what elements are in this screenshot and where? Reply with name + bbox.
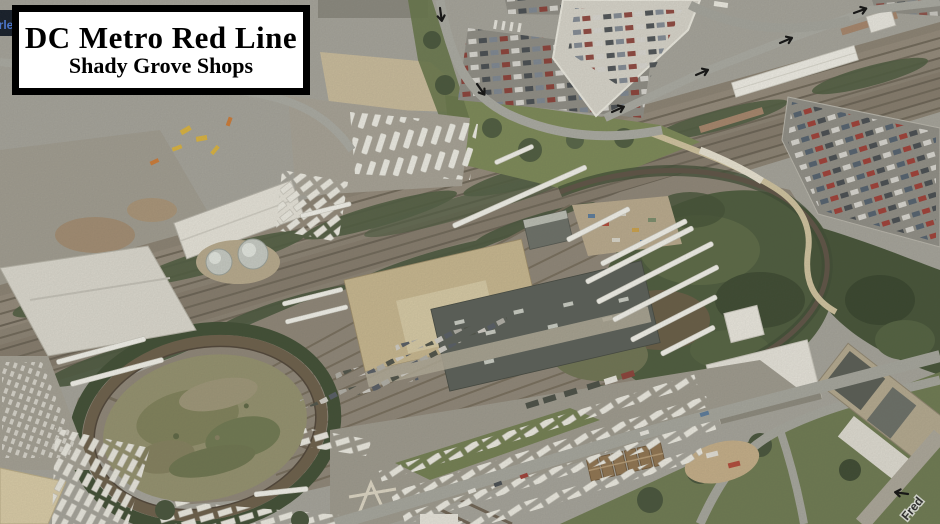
title-card: DC Metro Red Line Shady Grove Shops [12, 5, 310, 95]
title-line2: Shady Grove Shops [69, 54, 253, 78]
screenshot-root: Fred erle DC Metro Red Line Shady Grove … [0, 0, 940, 524]
title-line1: DC Metro Red Line [25, 22, 297, 54]
